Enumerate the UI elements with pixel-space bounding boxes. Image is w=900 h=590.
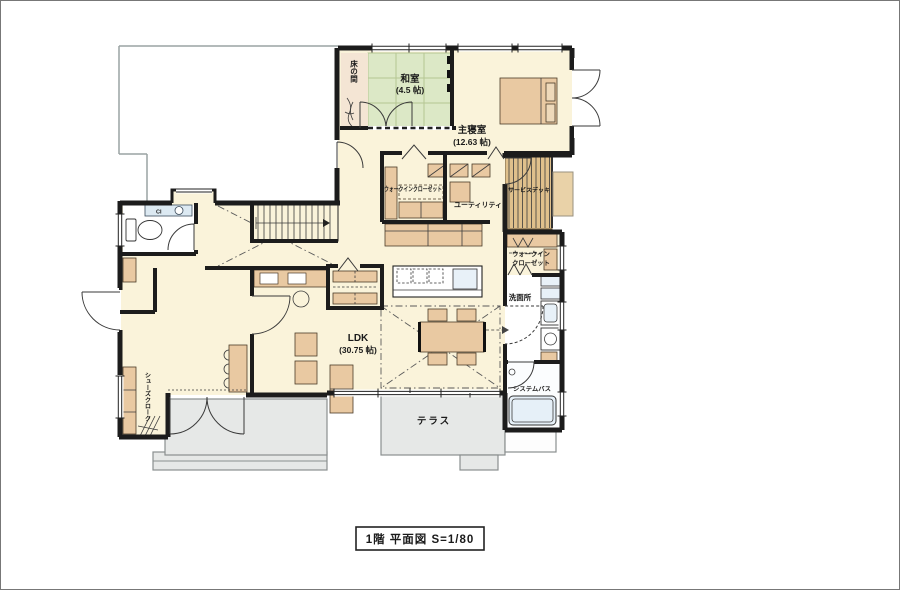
kitchen-island	[393, 266, 482, 297]
toilet-basin	[175, 207, 183, 215]
window-bedroom-north-1	[458, 44, 512, 53]
nook-shelf	[123, 258, 136, 282]
bed-pillow	[546, 104, 555, 122]
dining-chair	[457, 309, 476, 321]
window-washroom-east	[558, 302, 567, 330]
bed	[500, 78, 557, 124]
vanity-sink	[544, 304, 557, 322]
wash-cabinet	[541, 288, 560, 299]
label-ldk-size: (30.75 帖)	[339, 345, 377, 355]
label-shoes-closet: シューズクローク	[144, 372, 151, 423]
window-washitsu-north	[372, 44, 446, 53]
caption-text: 1階 平面図 S=1/80	[366, 532, 475, 546]
desk-pad	[260, 273, 278, 284]
label-tokonoma: 床の間	[349, 59, 358, 84]
label-terrace: テラス	[417, 416, 451, 427]
label-ldk: LDK	[348, 333, 369, 344]
window-wic2-east	[558, 246, 567, 270]
west-exterior-door	[82, 288, 120, 332]
desk-pad	[288, 273, 306, 284]
window-toilet-west	[116, 214, 125, 246]
label-wic1: ウォークインクローゼット	[384, 184, 442, 193]
washing-machine	[541, 328, 560, 350]
label-master-size: (12.63 帖)	[453, 137, 491, 147]
label-wic2-line2: クローゼット	[512, 258, 550, 267]
dining-chair	[457, 353, 476, 365]
table-edge	[418, 322, 421, 352]
wash-lower-cabinet	[541, 352, 557, 361]
label-master: 主寝室	[458, 124, 487, 136]
dining-table	[420, 322, 484, 352]
terrace-sliding-doors	[378, 389, 500, 398]
washer-square	[450, 182, 470, 202]
caption: 1階 平面図 S=1/80	[356, 527, 484, 550]
label-bath: システムバス	[513, 385, 551, 393]
bedroom-french-doors	[572, 58, 604, 138]
pantry	[328, 258, 382, 308]
label-washitsu-size: (4.5 帖)	[396, 85, 425, 95]
floorplan-drawing: 床の間 和室 (4.5 帖) 主寝室 (12.63 帖) ウォークインクローゼッ…	[0, 0, 900, 590]
entrance-porch	[165, 399, 327, 455]
sofa-chair	[295, 361, 317, 384]
coat-cabinet-body	[229, 345, 247, 392]
bed-pillow	[546, 83, 555, 101]
window-bedroom-north-2	[518, 44, 562, 53]
terrace-step	[460, 455, 498, 470]
kitchen-sink	[453, 269, 477, 289]
dining-chair	[428, 353, 447, 365]
label-wic2-line1: ウォークイン	[512, 249, 550, 258]
window-ldk-south	[334, 389, 378, 398]
stairs	[252, 205, 338, 241]
window-shoes-west	[116, 376, 125, 418]
label-toilet-counter: CI	[156, 210, 162, 216]
bath-step	[505, 430, 556, 452]
wic1-side-shelf	[385, 167, 397, 219]
label-utility: ユーティリティ	[454, 201, 502, 209]
toilet-bowl	[138, 221, 162, 240]
toilet-tank	[126, 219, 136, 241]
bathtub	[509, 396, 556, 425]
window-niche	[176, 188, 212, 194]
washroom-fixtures	[541, 275, 560, 361]
deck-step	[553, 172, 573, 216]
window-bath-east	[558, 392, 567, 416]
floorplan-page: 床の間 和室 (4.5 帖) 主寝室 (12.63 帖) ウォークインクローゼッ…	[0, 0, 900, 590]
sofa-chair	[295, 333, 317, 356]
label-washroom: 洗面所	[509, 292, 532, 302]
toilet-counter	[145, 205, 192, 216]
utility-counter	[385, 224, 482, 246]
shoe-shelf	[123, 367, 136, 434]
table-edge	[483, 322, 486, 352]
label-service-deck: サービスデッキ	[508, 186, 550, 194]
dining-chair	[428, 309, 447, 321]
label-washitsu: 和室	[399, 73, 420, 85]
